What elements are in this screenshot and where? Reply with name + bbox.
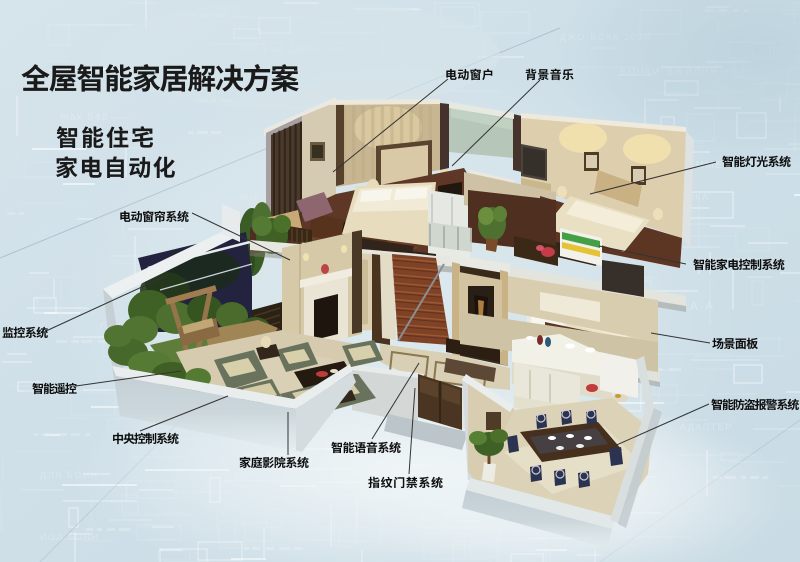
svg-text:max 545: max 545: [60, 112, 109, 123]
svg-text:ИОЛ БОНН: ИОЛ БОНН: [40, 532, 100, 542]
